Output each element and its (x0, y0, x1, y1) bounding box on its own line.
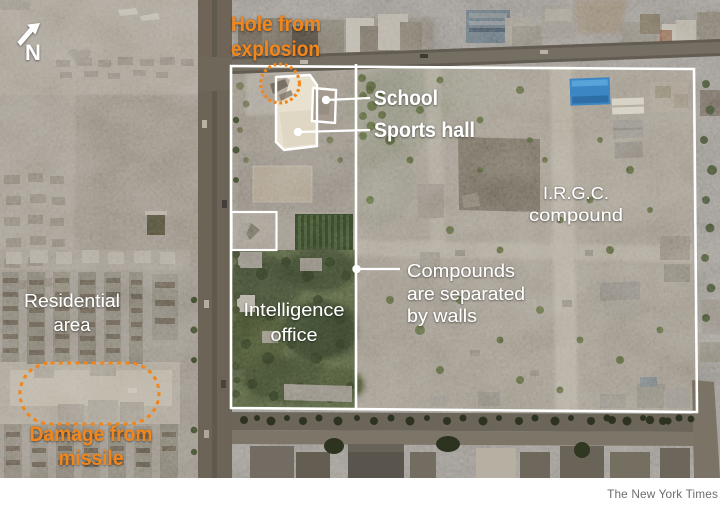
svg-text:are separated: are separated (407, 284, 525, 304)
svg-text:N: N (25, 40, 41, 65)
svg-text:area: area (54, 315, 92, 335)
svg-text:I.R.G.C.: I.R.G.C. (543, 183, 609, 203)
svg-text:Residential: Residential (24, 291, 120, 311)
svg-text:Sports hall: Sports hall (374, 119, 475, 142)
svg-text:School: School (374, 87, 438, 110)
svg-text:office: office (271, 325, 318, 345)
svg-text:missile: missile (59, 447, 124, 470)
svg-text:Hole from: Hole from (231, 13, 321, 36)
svg-text:explosion: explosion (231, 38, 320, 61)
svg-text:Damage from: Damage from (30, 423, 153, 446)
svg-text:by walls: by walls (407, 306, 477, 326)
svg-text:Compounds: Compounds (407, 261, 515, 281)
svg-text:Intelligence: Intelligence (244, 300, 345, 320)
svg-text:compound: compound (529, 205, 623, 225)
